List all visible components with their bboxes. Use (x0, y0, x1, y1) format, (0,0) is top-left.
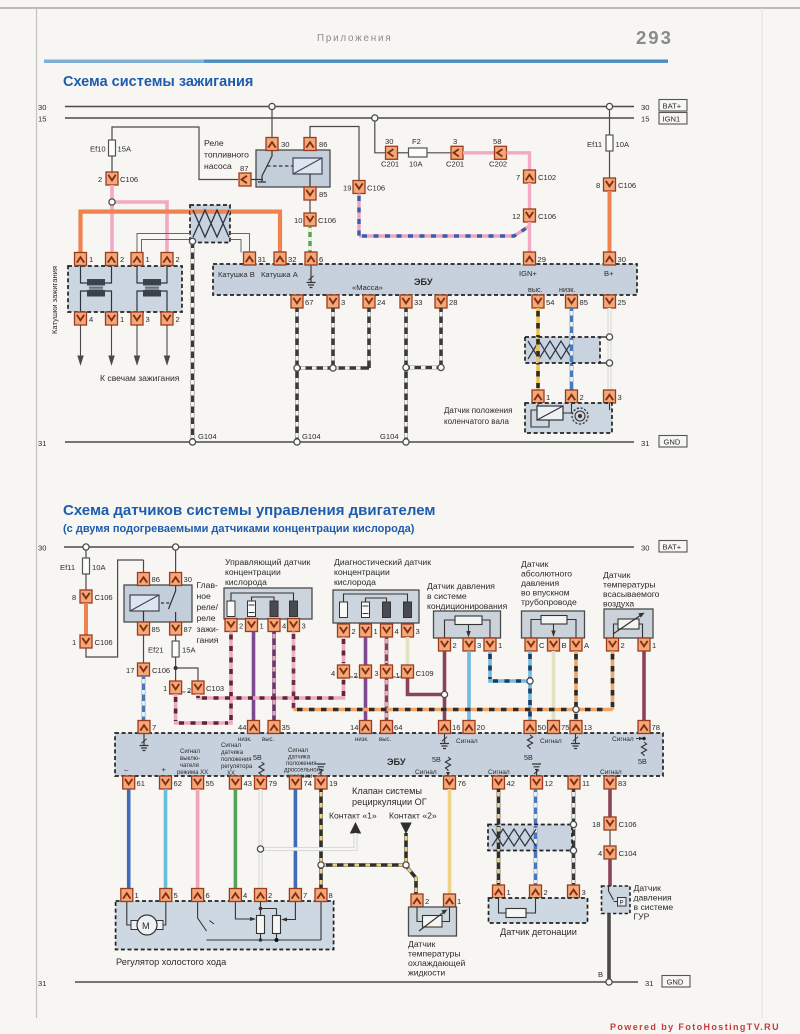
svg-text:4: 4 (282, 622, 286, 631)
svg-text:A: A (584, 641, 590, 650)
svg-text:28: 28 (449, 298, 457, 307)
svg-text:29: 29 (538, 255, 546, 264)
svg-text:7: 7 (303, 891, 307, 900)
svg-text:Контакт «1»: Контакт «1» (329, 811, 377, 821)
svg-text:2: 2 (176, 255, 180, 264)
svg-text:87: 87 (184, 625, 192, 634)
svg-text:30: 30 (281, 140, 289, 149)
svg-text:режима XX: режима XX (177, 770, 208, 776)
svg-text:50: 50 (538, 723, 546, 732)
svg-text:3: 3 (582, 888, 586, 897)
svg-text:низк.: низк. (355, 737, 369, 743)
svg-text:Сигнал: Сигнал (540, 738, 562, 745)
svg-text:2: 2 (268, 891, 272, 900)
svg-text:2: 2 (239, 622, 243, 631)
svg-text:35: 35 (282, 723, 290, 732)
svg-text:2: 2 (544, 888, 548, 897)
svg-text:5В: 5В (638, 757, 647, 766)
svg-text:5В: 5В (432, 755, 441, 764)
svg-text:C106: C106 (152, 666, 170, 675)
svg-text:BAT+: BAT+ (663, 543, 682, 552)
svg-text:реле/: реле/ (197, 602, 219, 612)
svg-text:8: 8 (596, 181, 600, 190)
svg-text:31: 31 (38, 439, 46, 448)
svg-text:3: 3 (302, 622, 306, 631)
svg-text:4: 4 (243, 891, 247, 900)
svg-text:К свечам зажигания: К свечам зажигания (100, 373, 180, 383)
svg-text:IGN+: IGN+ (519, 269, 538, 278)
svg-text:GND: GND (667, 978, 684, 987)
svg-text:C201: C201 (381, 160, 399, 169)
svg-text:30: 30 (641, 544, 649, 553)
svg-text:Глав-: Глав- (197, 580, 219, 590)
svg-text:C109: C109 (416, 669, 434, 678)
svg-text:Реле: Реле (204, 138, 224, 148)
svg-text:1: 1 (652, 641, 656, 650)
svg-text:Датчик: Датчик (408, 939, 436, 949)
svg-text:Катушки зажигания: Катушки зажигания (50, 266, 59, 334)
svg-text:в системе: в системе (634, 902, 674, 912)
svg-text:1: 1 (163, 684, 167, 693)
svg-text:12: 12 (545, 779, 553, 788)
svg-text:10: 10 (294, 216, 302, 225)
svg-text:31: 31 (258, 255, 266, 264)
svg-text:83: 83 (618, 779, 626, 788)
svg-text:C106: C106 (95, 638, 113, 647)
svg-text:85: 85 (319, 190, 327, 199)
svg-text:зажи-: зажи- (197, 624, 219, 634)
svg-text:B+: B+ (604, 269, 614, 278)
svg-text:8: 8 (329, 891, 333, 900)
svg-text:67: 67 (305, 298, 313, 307)
svg-text:C106: C106 (318, 216, 336, 225)
svg-text:G104: G104 (198, 432, 217, 441)
svg-text:1: 1 (498, 641, 502, 650)
svg-text:жидкости: жидкости (408, 968, 445, 978)
svg-text:3: 3 (146, 315, 150, 324)
svg-text:Контакт «2»: Контакт «2» (389, 811, 437, 821)
svg-text:1: 1 (546, 393, 550, 402)
svg-text:C102: C102 (538, 173, 556, 182)
svg-text:выс.: выс. (379, 737, 392, 743)
svg-text:30: 30 (38, 103, 46, 112)
svg-text:насоса: насоса (204, 161, 232, 171)
svg-text:2: 2 (120, 255, 124, 264)
svg-text:регулятора: регулятора (221, 764, 253, 770)
svg-text:10A: 10A (92, 563, 106, 572)
svg-text:4: 4 (89, 315, 93, 324)
svg-text:C106: C106 (95, 593, 113, 602)
svg-text:Сигнал: Сигнал (612, 736, 634, 743)
svg-text:Датчик: Датчик (603, 570, 631, 580)
svg-text:Схема датчиков системы управле: Схема датчиков системы управления двигат… (63, 502, 435, 519)
svg-text:79: 79 (269, 779, 277, 788)
svg-text:3: 3 (416, 627, 420, 636)
svg-text:33: 33 (414, 298, 422, 307)
svg-text:1: 1 (146, 255, 150, 264)
svg-text:датчика: датчика (221, 750, 244, 756)
svg-text:B: B (598, 970, 603, 979)
svg-text:1: 1 (374, 627, 378, 636)
svg-text:Ef11: Ef11 (587, 140, 602, 149)
svg-text:7: 7 (152, 723, 156, 732)
svg-text:C106: C106 (367, 184, 385, 193)
svg-text:Катушка А: Катушка А (261, 270, 299, 279)
svg-text:низк.: низк. (559, 285, 575, 294)
svg-text:ное: ное (197, 591, 212, 601)
svg-text:293: 293 (636, 27, 673, 48)
svg-text:ЭБУ: ЭБУ (387, 757, 406, 767)
svg-text:3: 3 (618, 393, 622, 402)
svg-text:1: 1 (72, 638, 76, 647)
svg-text:Сигнал: Сигнал (221, 743, 242, 749)
svg-text:BAT+: BAT+ (663, 102, 682, 111)
svg-text:3: 3 (375, 669, 379, 678)
svg-text:всасываемого: всасываемого (603, 589, 660, 599)
svg-text:2: 2 (187, 686, 191, 695)
svg-text:5В: 5В (253, 753, 262, 762)
svg-text:Катушка В: Катушка В (218, 270, 255, 279)
svg-text:Сигнал: Сигнал (415, 769, 437, 776)
svg-text:Powered by FotoHostingTV.RU: Powered by FotoHostingTV.RU (610, 1022, 780, 1032)
svg-text:61: 61 (137, 779, 145, 788)
svg-text:Сигнал: Сигнал (288, 748, 309, 754)
svg-text:11: 11 (582, 779, 590, 788)
svg-text:3: 3 (341, 298, 345, 307)
svg-text:ГУР: ГУР (634, 912, 650, 922)
svg-text:2: 2 (580, 393, 584, 402)
svg-text:19: 19 (343, 184, 351, 193)
svg-text:Датчик давления: Датчик давления (427, 581, 495, 591)
svg-text:30: 30 (641, 103, 649, 112)
svg-text:18: 18 (592, 820, 600, 829)
svg-text:7: 7 (516, 173, 520, 182)
svg-text:Диагностический датчик: Диагностический датчик (334, 557, 431, 567)
svg-text:коленчатого вала: коленчатого вала (444, 417, 510, 426)
svg-text:16: 16 (452, 723, 460, 732)
svg-text:кислорода: кислорода (225, 577, 267, 587)
svg-text:55: 55 (206, 779, 214, 788)
svg-text:+: + (162, 765, 167, 774)
svg-text:25: 25 (618, 298, 626, 307)
svg-text:G104: G104 (302, 432, 321, 441)
svg-text:64: 64 (394, 723, 402, 732)
svg-text:2: 2 (98, 175, 102, 184)
svg-text:15: 15 (38, 115, 46, 124)
svg-text:положения: положения (286, 761, 317, 767)
svg-text:кондиционирования: кондиционирования (427, 601, 508, 611)
svg-text:2: 2 (352, 627, 356, 636)
svg-text:C104: C104 (619, 849, 637, 858)
svg-text:Сигнал: Сигнал (600, 769, 622, 776)
svg-text:Сигнал: Сигнал (456, 738, 478, 745)
svg-text:6: 6 (319, 255, 323, 264)
svg-text:42: 42 (507, 779, 515, 788)
svg-text:C106: C106 (619, 820, 637, 829)
svg-text:F2: F2 (412, 137, 421, 146)
svg-text:абсолютного: абсолютного (521, 569, 572, 579)
svg-text:14: 14 (350, 723, 358, 732)
svg-text:Датчик: Датчик (521, 559, 549, 569)
svg-text:G104: G104 (380, 432, 399, 441)
svg-text:GND: GND (664, 438, 681, 447)
svg-text:5В: 5В (524, 753, 533, 762)
svg-text:C: C (539, 641, 545, 650)
svg-text:44: 44 (238, 723, 246, 732)
svg-text:Управляющий датчик: Управляющий датчик (225, 557, 311, 567)
svg-text:кислорода: кислорода (334, 577, 376, 587)
svg-text:Регулятор холостого хода: Регулятор холостого хода (116, 957, 227, 967)
svg-text:62: 62 (174, 779, 182, 788)
svg-text:во впускном: во впускном (521, 588, 570, 598)
svg-text:1: 1 (135, 891, 139, 900)
svg-text:17: 17 (126, 666, 134, 675)
svg-text:85: 85 (152, 625, 160, 634)
svg-text:дроссельной: дроссельной (284, 767, 320, 774)
svg-text:2: 2 (176, 315, 180, 324)
svg-text:IGN1: IGN1 (663, 115, 681, 124)
svg-text:24: 24 (377, 298, 385, 307)
svg-text:Датчик детонации: Датчик детонации (500, 927, 577, 937)
svg-text:30: 30 (618, 255, 626, 264)
svg-text:рециркуляции ОГ: рециркуляции ОГ (352, 797, 427, 807)
svg-text:температуры: температуры (603, 580, 656, 590)
svg-text:Клапан системы: Клапан системы (352, 786, 422, 796)
svg-text:«Масса»: «Масса» (352, 283, 383, 292)
svg-text:1: 1 (89, 255, 93, 264)
svg-text:75: 75 (561, 723, 569, 732)
svg-text:30: 30 (38, 544, 46, 553)
svg-text:P: P (620, 901, 624, 907)
svg-text:86: 86 (319, 140, 327, 149)
svg-text:2: 2 (453, 641, 457, 650)
svg-text:B: B (562, 641, 567, 650)
svg-text:87: 87 (240, 164, 248, 173)
svg-text:трубопроводе: трубопроводе (521, 597, 577, 607)
svg-text:30: 30 (184, 575, 192, 584)
svg-text:31: 31 (641, 439, 649, 448)
svg-text:ЭБУ: ЭБУ (414, 277, 433, 287)
svg-text:54: 54 (546, 298, 554, 307)
svg-text:74: 74 (304, 779, 312, 788)
svg-text:15: 15 (641, 115, 649, 124)
svg-text:гания: гания (197, 635, 219, 645)
svg-text:4: 4 (598, 849, 602, 858)
svg-text:концентрации: концентрации (334, 567, 390, 577)
svg-text:10A: 10A (616, 140, 630, 149)
svg-text:2: 2 (425, 897, 429, 906)
svg-text:32: 32 (288, 255, 296, 264)
svg-text:C103: C103 (206, 684, 224, 693)
svg-text:76: 76 (458, 779, 466, 788)
svg-text:78: 78 (652, 723, 660, 732)
svg-text:4: 4 (395, 627, 399, 636)
svg-text:1: 1 (507, 888, 511, 897)
svg-text:давления: давления (521, 578, 560, 588)
svg-text:C106: C106 (120, 175, 138, 184)
svg-text:85: 85 (580, 298, 588, 307)
svg-text:Ef21: Ef21 (148, 646, 164, 655)
svg-text:M: M (142, 921, 150, 931)
svg-text:13: 13 (584, 723, 592, 732)
svg-text:10A: 10A (409, 160, 423, 169)
svg-text:датчика: датчика (288, 755, 311, 761)
svg-text:Схема системы зажигания: Схема системы зажигания (63, 74, 253, 90)
svg-text:19: 19 (329, 779, 337, 788)
svg-text:58: 58 (493, 137, 501, 146)
svg-text:топливного: топливного (204, 150, 249, 160)
svg-text:низк.: низк. (238, 737, 252, 743)
svg-text:температуры: температуры (408, 949, 461, 959)
svg-text:выклю-: выклю- (180, 756, 200, 762)
svg-text:6: 6 (206, 891, 210, 900)
svg-text:концентрации: концентрации (225, 567, 281, 577)
svg-text:4: 4 (331, 669, 335, 678)
svg-text:Датчик положения: Датчик положения (444, 406, 512, 415)
svg-text:Ef10: Ef10 (90, 145, 106, 154)
svg-text:1: 1 (457, 897, 461, 906)
svg-text:Датчик: Датчик (634, 883, 662, 893)
svg-text:давления: давления (634, 893, 673, 903)
svg-text:выс.: выс. (528, 285, 543, 294)
svg-text:C202: C202 (489, 160, 507, 169)
svg-text:3: 3 (477, 641, 481, 650)
svg-text:выс.: выс. (262, 737, 275, 743)
svg-text:30: 30 (385, 137, 393, 146)
svg-text:Сигнал: Сигнал (180, 749, 201, 755)
svg-text:Приложения: Приложения (317, 33, 392, 44)
svg-text:охлаждающей: охлаждающей (408, 958, 466, 968)
svg-text:реле: реле (197, 613, 216, 623)
svg-text:43: 43 (244, 779, 252, 788)
svg-text:воздуха: воздуха (603, 599, 634, 609)
svg-text:1: 1 (260, 622, 264, 631)
svg-text:15A: 15A (182, 646, 196, 655)
svg-text:3: 3 (453, 137, 457, 146)
svg-text:Ef11: Ef11 (60, 563, 75, 572)
svg-text:8: 8 (72, 593, 76, 602)
svg-text:C201: C201 (446, 160, 464, 169)
svg-text:20: 20 (477, 723, 485, 732)
svg-text:1: 1 (120, 315, 124, 324)
svg-text:чателя: чателя (180, 763, 199, 769)
svg-text:2: 2 (354, 671, 358, 680)
svg-text:15A: 15A (118, 145, 132, 154)
svg-text:2: 2 (621, 641, 625, 650)
svg-text:(с двумя подогреваемыми датчик: (с двумя подогреваемыми датчиками концен… (63, 523, 415, 535)
svg-text:положения: положения (221, 757, 252, 763)
svg-text:31: 31 (38, 979, 46, 988)
svg-text:Сигнал: Сигнал (488, 769, 510, 776)
svg-text:в системе: в системе (427, 591, 467, 601)
svg-text:5: 5 (174, 891, 178, 900)
svg-text:31: 31 (645, 979, 653, 988)
svg-text:86: 86 (152, 575, 160, 584)
svg-text:1: 1 (396, 671, 400, 680)
svg-text:C106: C106 (618, 181, 636, 190)
svg-text:C106: C106 (538, 212, 556, 221)
svg-text:12: 12 (512, 212, 520, 221)
